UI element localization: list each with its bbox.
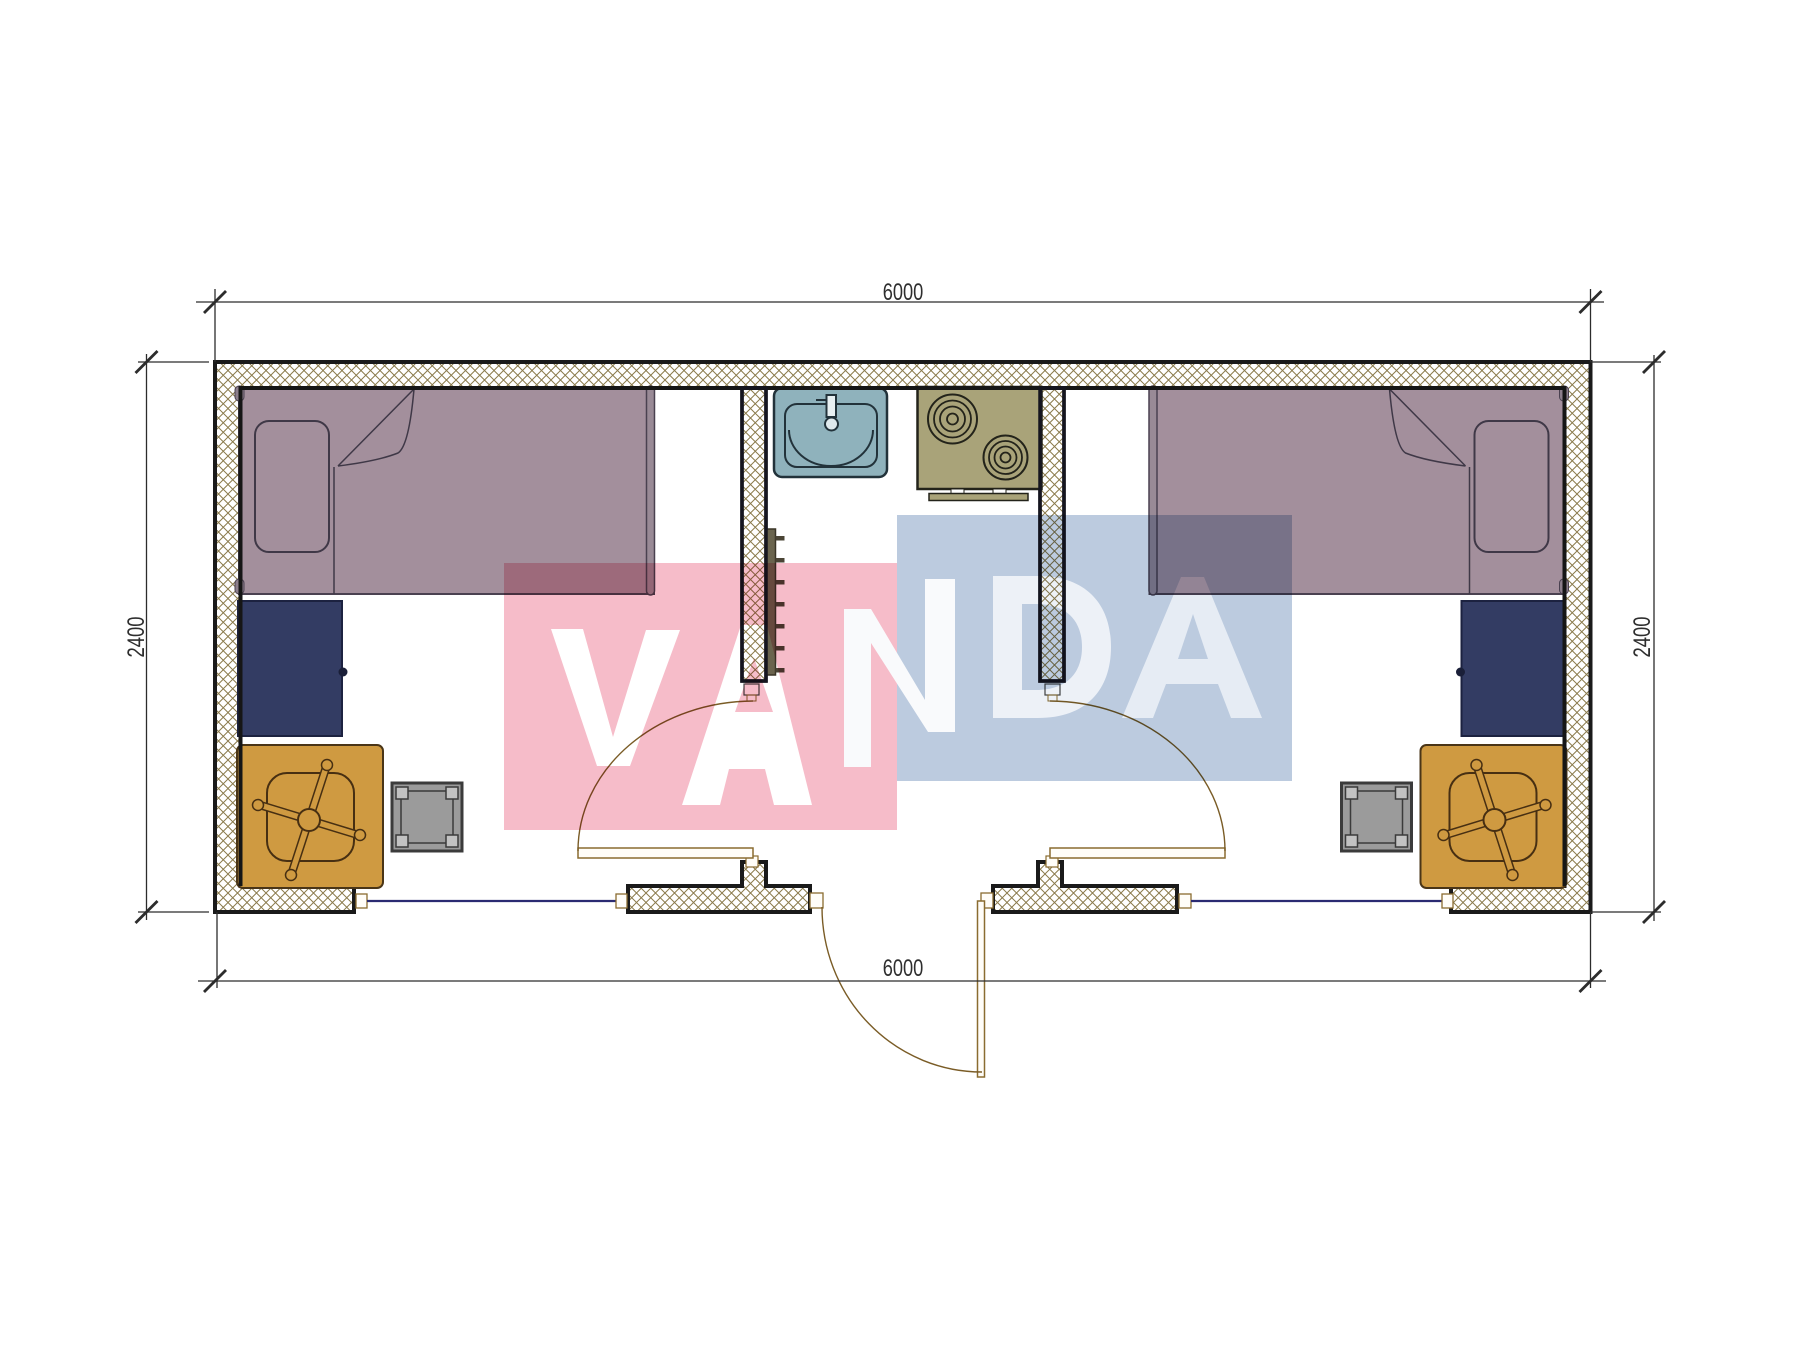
svg-text:2400: 2400 [1629,616,1656,657]
svg-text:6000: 6000 [883,955,924,982]
svg-text:6000: 6000 [883,279,924,306]
svg-text:2400: 2400 [123,616,150,657]
